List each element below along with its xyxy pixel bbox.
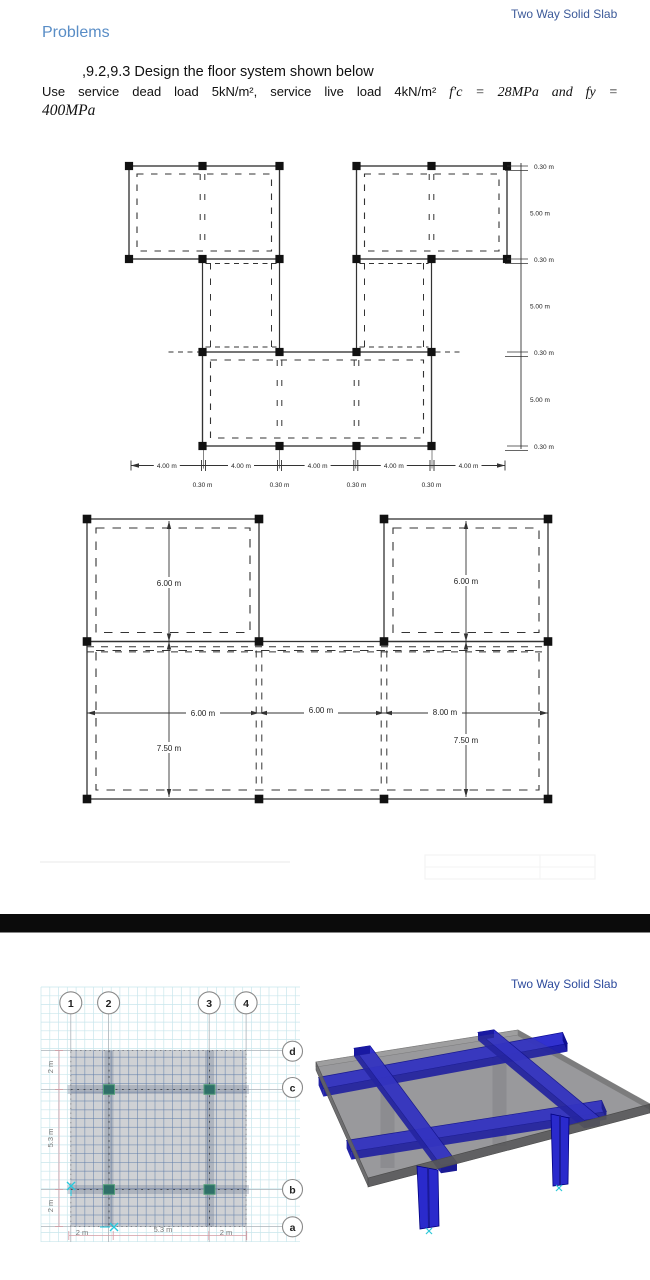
svg-text:5.3 m: 5.3 m: [46, 1129, 55, 1148]
svg-text:4: 4: [243, 998, 249, 1010]
svg-text:0.30 m: 0.30 m: [534, 257, 554, 264]
svg-text:5.3 m: 5.3 m: [154, 1225, 173, 1234]
svg-text:6.00 m: 6.00 m: [309, 706, 334, 715]
svg-text:0.30 m: 0.30 m: [422, 482, 442, 489]
svg-text:2 m: 2 m: [46, 1200, 55, 1213]
svg-text:4.00 m: 4.00 m: [157, 463, 177, 470]
svg-text:2: 2: [106, 998, 112, 1010]
svg-text:d: d: [289, 1046, 295, 1058]
svg-text:5.00 m: 5.00 m: [530, 397, 550, 404]
svg-text:4.00 m: 4.00 m: [384, 463, 404, 470]
svg-text:4.00 m: 4.00 m: [231, 463, 251, 470]
svg-text:3: 3: [206, 998, 212, 1010]
svg-text:1: 1: [68, 998, 74, 1010]
svg-text:a: a: [290, 1222, 296, 1234]
svg-text:7.50 m: 7.50 m: [454, 736, 479, 745]
svg-text:0.30 m: 0.30 m: [270, 482, 290, 489]
svg-text:0.30 m: 0.30 m: [347, 482, 367, 489]
svg-text:6.00 m: 6.00 m: [454, 577, 479, 586]
svg-text:0.30 m: 0.30 m: [534, 444, 554, 451]
svg-text:b: b: [289, 1185, 295, 1197]
svg-text:c: c: [290, 1083, 296, 1095]
svg-text:2 m: 2 m: [220, 1228, 233, 1237]
svg-text:5.00 m: 5.00 m: [530, 304, 550, 311]
svg-text:4.00 m: 4.00 m: [308, 463, 328, 470]
svg-text:5.00 m: 5.00 m: [530, 211, 550, 218]
svg-text:6.00 m: 6.00 m: [191, 709, 216, 718]
svg-text:2 m: 2 m: [76, 1228, 89, 1237]
svg-text:0.30 m: 0.30 m: [534, 164, 554, 171]
svg-text:4.00 m: 4.00 m: [459, 463, 479, 470]
svg-text:2 m: 2 m: [46, 1061, 55, 1074]
svg-text:0.30 m: 0.30 m: [193, 482, 213, 489]
svg-text:6.00 m: 6.00 m: [157, 579, 182, 588]
svg-text:0.30 m: 0.30 m: [534, 350, 554, 357]
svg-text:7.50 m: 7.50 m: [157, 744, 182, 753]
svg-text:8.00 m: 8.00 m: [433, 708, 458, 717]
